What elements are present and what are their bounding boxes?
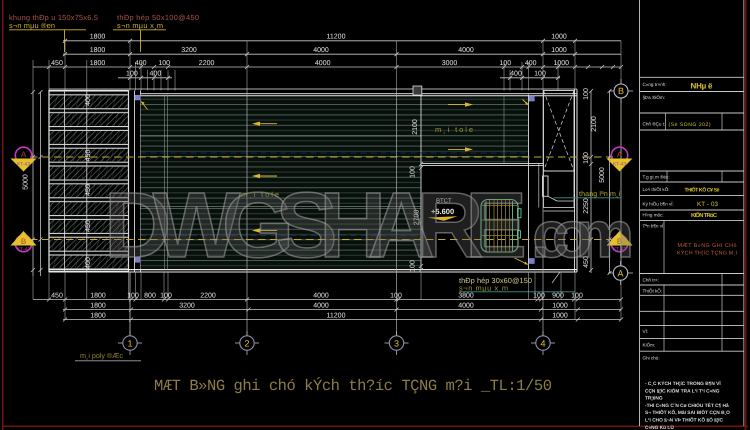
svg-text:CÇN §¦îC KIÓM TRA L¹I T¹I C«NG: CÇN §¦îC KIÓM TRA L¹I T¹I C«NG [645, 387, 720, 394]
svg-text:3: 3 [394, 339, 399, 349]
svg-text:1000: 1000 [552, 302, 568, 309]
svg-text:2200: 2200 [199, 60, 215, 67]
svg-text:5000: 5000 [599, 167, 606, 183]
svg-text:m¸i poly ®Æc: m¸i poly ®Æc [80, 351, 123, 360]
svg-text:C«ng tr×nh:: C«ng tr×nh: [643, 82, 667, 87]
svg-text:3200: 3200 [179, 302, 195, 309]
svg-text:2: 2 [244, 339, 249, 349]
svg-text:MÆT B»NG ghi chó kÝch th?íc TÇ: MÆT B»NG ghi chó kÝch th?íc TÇNG m?i _TL… [154, 377, 552, 395]
svg-text:(Sè SONG 202): (Sè SONG 202) [669, 122, 711, 128]
svg-text:KÝCH TH¦íC TÇNG M¸I: KÝCH TH¦íC TÇNG M¸I [677, 250, 737, 257]
svg-text:400: 400 [510, 71, 522, 78]
svg-text:400: 400 [150, 71, 162, 78]
svg-text:100: 100 [390, 292, 402, 299]
svg-text:400: 400 [85, 257, 92, 269]
svg-text:KT-43: KT-43 [613, 162, 627, 168]
svg-text:s¬n mµu ®en: s¬n mµu ®en [9, 21, 55, 30]
svg-text:Tªn b¶n vÏ:: Tªn b¶n vÏ: [643, 224, 665, 229]
svg-text:800: 800 [144, 292, 156, 299]
svg-text:THIÕT KÕ C¥ Së: THIÕT KÕ C¥ Së [685, 187, 720, 194]
svg-text:1800: 1800 [90, 60, 106, 67]
svg-text:KiÓm:: KiÓm: [643, 343, 656, 348]
svg-text:400: 400 [85, 94, 92, 106]
svg-text:11200: 11200 [327, 312, 346, 319]
svg-text:.com: .com [531, 197, 634, 271]
svg-text:4: 4 [540, 339, 545, 349]
svg-text:1000: 1000 [551, 47, 567, 54]
svg-text:s¬n mµu x¸m: s¬n mµu x¸m [117, 21, 163, 30]
svg-text:C«NG Kü LÜ: C«NG Kü LÜ [645, 424, 674, 430]
svg-text:3000: 3000 [442, 60, 458, 67]
svg-text:Ghi chó:: Ghi chó: [643, 356, 660, 361]
svg-text:100: 100 [160, 292, 172, 299]
svg-text:100: 100 [158, 60, 170, 67]
svg-text:1800: 1800 [90, 47, 106, 54]
svg-text:4000: 4000 [313, 47, 329, 54]
svg-text:B: B [618, 86, 624, 96]
svg-text:900: 900 [552, 292, 564, 299]
svg-text:1800: 1800 [90, 292, 106, 299]
svg-text:4000: 4000 [313, 302, 329, 309]
svg-text:2100: 2100 [412, 119, 419, 135]
svg-text:s¬n mµu x¸m: s¬n mµu x¸m [459, 284, 508, 293]
svg-text:1800: 1800 [90, 302, 106, 309]
svg-text:KT - 03: KT - 03 [697, 201, 719, 208]
svg-text:1000: 1000 [551, 34, 567, 41]
svg-text:KT-43: KT-43 [17, 162, 31, 168]
svg-text:Chñ tr×:: Chñ tr×: [643, 278, 659, 283]
svg-text:100: 100 [571, 292, 583, 299]
svg-text:1000: 1000 [554, 60, 570, 67]
svg-text:100: 100 [583, 152, 590, 164]
svg-text:T.g gi¸m ®èc:: T.g gi¸m ®èc: [643, 175, 670, 180]
svg-text:450: 450 [51, 60, 63, 67]
svg-text:KIÕN TRóC: KIÕN TRóC [691, 211, 718, 219]
svg-text:A: A [617, 150, 623, 159]
svg-text:- C¸C KÝCH TH¦íC TRONG B¶N VÏ: - C¸C KÝCH TH¦íC TRONG B¶N VÏ [645, 380, 721, 387]
svg-text:Ký hiÖu b¶n vÏ:: Ký hiÖu b¶n vÏ: [643, 202, 674, 207]
svg-text:400: 400 [135, 60, 147, 67]
svg-text:4000: 4000 [315, 60, 331, 67]
svg-text:400: 400 [525, 60, 537, 67]
svg-text:NHµ ë: NHµ ë [691, 82, 714, 91]
svg-text:1800: 1800 [90, 34, 106, 41]
svg-text:100: 100 [583, 88, 590, 100]
svg-text:450: 450 [85, 220, 92, 232]
svg-text:3200: 3200 [181, 47, 197, 54]
svg-text:ThiÕt kÕ:: ThiÕt kÕ: [643, 288, 663, 294]
svg-text:§Þa ®iÓm:: §Þa ®iÓm: [643, 95, 666, 100]
svg-text:H¹ng môc:: H¹ng môc: [643, 213, 664, 218]
svg-text:450: 450 [85, 150, 92, 162]
svg-text:1: 1 [127, 339, 132, 349]
svg-text:100: 100 [533, 292, 545, 299]
svg-text:S¬ THIÕT KÕ, MäI SAI BIÖT CÇN: S¬ THIÕT KÕ, MäI SAI BIÖT CÇN B¸O [645, 409, 730, 416]
svg-text:4000: 4000 [458, 47, 474, 54]
svg-text:4000: 4000 [458, 302, 474, 309]
svg-text:Chñ ®Çu t­:: Chñ ®Çu t­: [643, 122, 666, 127]
svg-text:100: 100 [127, 292, 139, 299]
svg-text:5000: 5000 [23, 174, 30, 190]
svg-text:KT-43: KT-43 [17, 247, 31, 253]
svg-text:450: 450 [85, 184, 92, 196]
svg-text:100: 100 [534, 71, 546, 78]
svg-text:2100: 2100 [591, 116, 598, 132]
svg-text:Lo¹i thiÕt kÕ:: Lo¹i thiÕt kÕ: [643, 186, 670, 192]
svg-text:1000: 1000 [552, 312, 568, 319]
svg-text:MÆT B»NG GHI CHó: MÆT B»NG GHI CHó [678, 243, 737, 249]
svg-text:100: 100 [126, 71, 138, 78]
svg-text:2200: 2200 [200, 292, 216, 299]
svg-text:450: 450 [51, 292, 63, 299]
svg-text:3800: 3800 [458, 292, 474, 299]
svg-text:100: 100 [499, 60, 511, 67]
svg-text:-THI C«NG C¨N Cø CHIÒU TÊT C¶: -THI C«NG C¨N Cø CHIÒU TÊT C¶ Hå [645, 402, 729, 409]
svg-text:DWGSHARE: DWGSHARE [104, 173, 527, 277]
svg-text:11200: 11200 [327, 34, 346, 41]
svg-text:4000: 4000 [313, 292, 329, 299]
svg-text:L¹I CHO §¬N VÞ THIÕT KÕ §Ó §¦: L¹I CHO §¬N VÞ THIÕT KÕ §Ó §¦îC [645, 417, 724, 424]
svg-text:TR¦êNG: TR¦êNG [645, 396, 663, 402]
svg-text:B: B [21, 237, 26, 246]
svg-text:1800: 1800 [90, 312, 106, 319]
svg-text:VÏ:: VÏ: [643, 329, 649, 334]
svg-text:A: A [21, 150, 27, 159]
